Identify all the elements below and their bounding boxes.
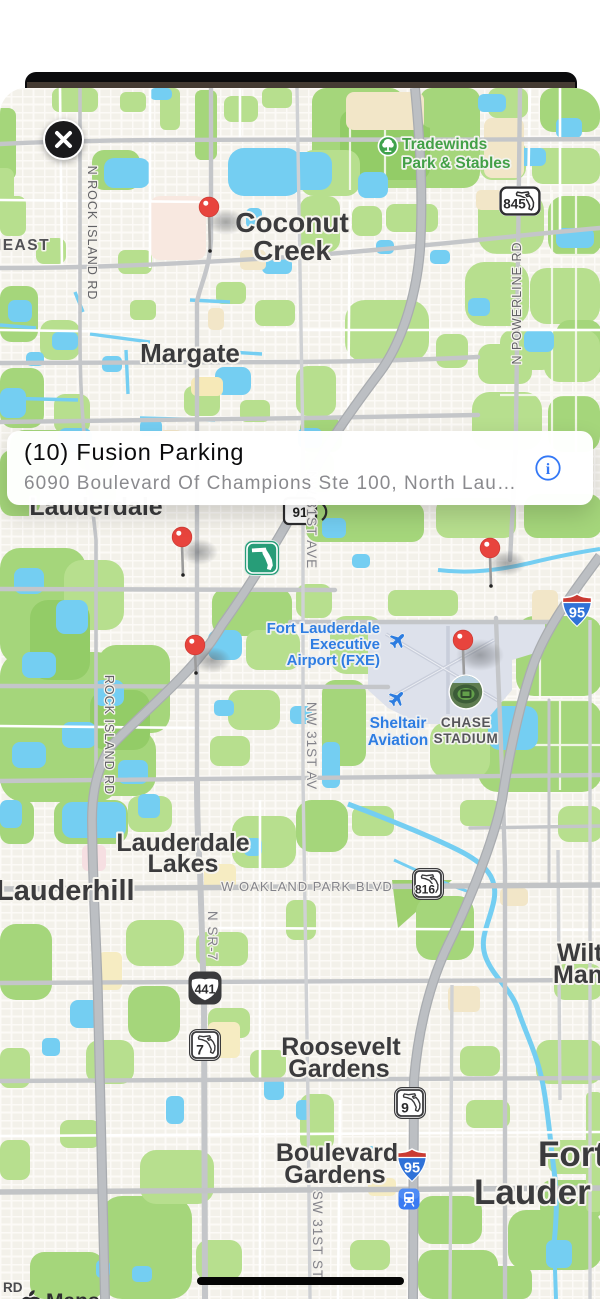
svg-text:N SR-7: N SR-7 [205, 911, 220, 961]
svg-text:Lauderhill: Lauderhill [0, 875, 135, 907]
svg-text:95: 95 [404, 1161, 420, 1177]
svg-text:95: 95 [569, 606, 585, 622]
svg-text:Sheltair: Sheltair [370, 715, 427, 732]
svg-text:816: 816 [415, 883, 435, 897]
svg-text:Maps: Maps [46, 1290, 100, 1299]
svg-text:NW 31ST AV: NW 31ST AV [304, 702, 319, 790]
svg-text:CHASE: CHASE [441, 715, 491, 730]
svg-text:845: 845 [503, 197, 526, 212]
svg-text:Lauder: Lauder [474, 1173, 591, 1212]
svg-text:Executive: Executive [310, 636, 380, 653]
svg-text:Lakes: Lakes [148, 850, 219, 878]
svg-text:7: 7 [196, 1042, 204, 1058]
svg-text:Fort Lauderdale: Fort Lauderdale [267, 620, 380, 637]
svg-text:Coconut: Coconut [235, 207, 349, 238]
svg-text:Gardens: Gardens [288, 1055, 389, 1083]
svg-text:SW 31ST ST: SW 31ST ST [310, 1191, 325, 1280]
svg-text:Margate: Margate [140, 338, 240, 368]
svg-text:i: i [546, 461, 551, 478]
svg-text:ROCK ISLAND RD: ROCK ISLAND RD [102, 675, 116, 795]
svg-text:Aviation: Aviation [368, 732, 429, 749]
svg-text:W OAKLAND PARK BLVD: W OAKLAND PARK BLVD [221, 879, 393, 894]
svg-text:RD: RD [3, 1280, 23, 1295]
svg-text:Fort: Fort [538, 1135, 600, 1174]
svg-text:Airport (FXE): Airport (FXE) [287, 652, 380, 669]
svg-text:Gardens: Gardens [284, 1161, 385, 1189]
svg-text:Tradewinds: Tradewinds [402, 136, 487, 153]
svg-text:N POWERLINE RD: N POWERLINE RD [510, 241, 524, 364]
svg-text:N ROCK ISLAND RD: N ROCK ISLAND RD [85, 166, 99, 301]
svg-text:Park & Stables: Park & Stables [402, 155, 511, 172]
svg-text:9: 9 [401, 1100, 409, 1116]
svg-text:441: 441 [195, 983, 216, 997]
svg-text:Creek: Creek [253, 235, 331, 266]
svg-text:Manor: Manor [553, 961, 600, 989]
svg-text:HEAST: HEAST [0, 237, 50, 254]
svg-text:STADIUM: STADIUM [434, 731, 499, 746]
